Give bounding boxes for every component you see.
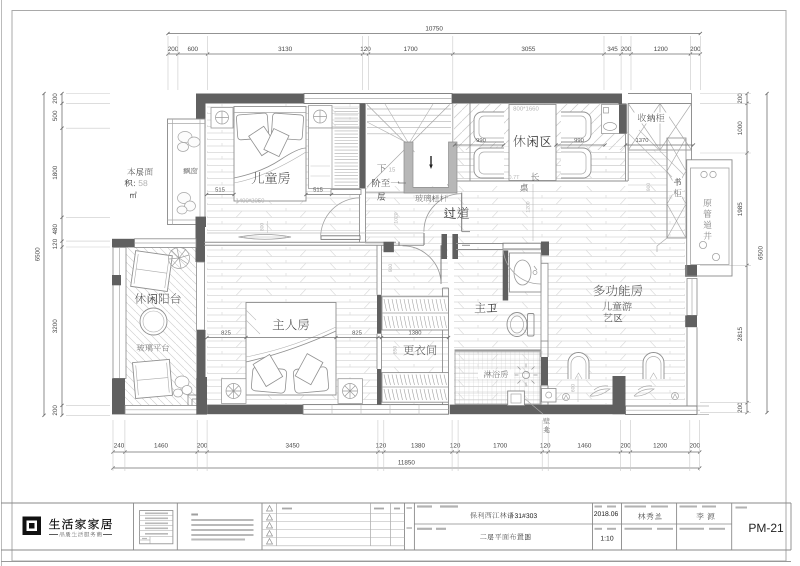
svg-text:10750: 10750 (425, 26, 443, 33)
svg-text:11850: 11850 (398, 460, 416, 467)
svg-text:2815: 2815 (737, 327, 744, 342)
svg-text:1200: 1200 (653, 443, 668, 450)
svg-text:1020: 1020 (394, 212, 400, 223)
svg-text:200: 200 (737, 402, 744, 413)
svg-text:58: 58 (138, 178, 148, 188)
svg-text:0.7T: 0.7T (508, 175, 520, 181)
svg-text:600: 600 (187, 46, 198, 53)
svg-text:1460: 1460 (577, 443, 592, 450)
svg-text:6500: 6500 (758, 246, 765, 261)
svg-text:1460: 1460 (154, 443, 169, 450)
svg-text:1200: 1200 (654, 46, 669, 53)
svg-text:515: 515 (313, 188, 323, 194)
svg-text:500: 500 (52, 110, 59, 121)
svg-text:1985: 1985 (737, 202, 744, 217)
svg-text:200: 200 (621, 46, 632, 53)
svg-text:200: 200 (52, 405, 59, 416)
svg-text:600: 600 (571, 384, 577, 393)
svg-text:3450: 3450 (285, 443, 300, 450)
svg-text:1800: 1800 (52, 165, 59, 180)
svg-text:1380: 1380 (411, 443, 426, 450)
svg-text:6500: 6500 (35, 247, 42, 262)
svg-text:3200: 3200 (52, 319, 59, 334)
svg-text:1:10: 1:10 (600, 536, 613, 543)
svg-text:200: 200 (168, 46, 179, 53)
svg-text:1700: 1700 (404, 46, 419, 53)
svg-text:31#303: 31#303 (515, 513, 538, 520)
svg-text:1700: 1700 (493, 443, 508, 450)
svg-text:3130: 3130 (278, 46, 293, 53)
svg-text:1200: 1200 (526, 201, 532, 212)
svg-text:120: 120 (450, 443, 461, 450)
svg-text:850: 850 (393, 346, 399, 355)
svg-text:120: 120 (360, 46, 371, 53)
svg-text:3055: 3055 (521, 46, 536, 53)
svg-text:200: 200 (690, 46, 701, 53)
svg-text:1000: 1000 (737, 121, 744, 136)
svg-text:200: 200 (737, 93, 744, 104)
svg-text:200: 200 (52, 93, 59, 104)
svg-text:800: 800 (260, 223, 266, 232)
svg-text:345: 345 (607, 46, 618, 53)
svg-text:200: 200 (620, 443, 631, 450)
svg-text:15: 15 (389, 167, 396, 174)
svg-text:2018.06: 2018.06 (594, 511, 619, 518)
svg-text:120: 120 (540, 443, 551, 450)
svg-text:990: 990 (476, 137, 486, 144)
svg-text:990: 990 (574, 137, 584, 144)
svg-text:825: 825 (352, 330, 362, 337)
svg-text:900: 900 (646, 183, 652, 192)
svg-text:1370: 1370 (636, 137, 649, 144)
svg-text:800*1660: 800*1660 (513, 106, 539, 113)
svg-text:200: 200 (689, 443, 700, 450)
svg-text:1380: 1380 (409, 330, 422, 337)
svg-text:PM-21: PM-21 (748, 521, 784, 535)
svg-text:480: 480 (52, 223, 59, 234)
svg-text:825: 825 (221, 330, 231, 337)
svg-text:240: 240 (114, 443, 125, 450)
svg-text:1400*2050: 1400*2050 (235, 198, 265, 205)
svg-text:120: 120 (376, 443, 387, 450)
svg-text:120: 120 (52, 238, 59, 249)
svg-text:515: 515 (215, 188, 225, 194)
svg-text:200: 200 (197, 443, 208, 450)
svg-text:900: 900 (388, 264, 394, 273)
